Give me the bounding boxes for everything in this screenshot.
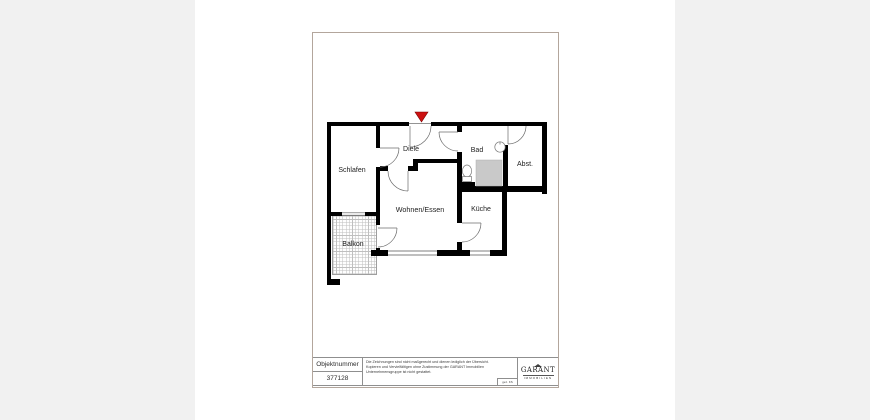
wall-segment xyxy=(376,167,380,225)
wall-segment xyxy=(457,152,462,223)
wall-segment xyxy=(365,212,378,216)
objektnummer-value: 377128 xyxy=(313,372,362,385)
disclaimer-line: Unternehmensgruppe ist nicht gestattet. xyxy=(366,370,514,375)
door-arc-abst xyxy=(508,126,526,144)
wall-segment xyxy=(376,248,380,256)
door-arc-entrance xyxy=(410,126,431,147)
door-arc-balkon xyxy=(378,228,397,247)
toilet-icon xyxy=(462,165,471,177)
wall-segment xyxy=(413,159,418,171)
room-label-wohnen-essen: Wohnen/Essen xyxy=(396,205,445,214)
walls xyxy=(327,122,547,285)
door-arc-diele-wohnen xyxy=(388,171,408,191)
room-label-bad: Bad xyxy=(471,147,484,154)
floor-plan-drawing: Schlafen Diele Bad Abst. Wohnen/Essen Kü… xyxy=(313,33,558,387)
logo-name: GARANT xyxy=(521,367,555,374)
logo-cell: GARANT IMMOBILIEN xyxy=(517,358,558,385)
room-label-kueche: Küche xyxy=(471,206,491,213)
background-band-left xyxy=(0,0,195,420)
wall-segment xyxy=(457,242,462,256)
room-label-schlafen: Schlafen xyxy=(338,167,365,174)
background-band-right xyxy=(675,0,870,420)
title-block: Objektnummer 377128 Die Zeichnungen sind… xyxy=(313,357,558,386)
wall-segment xyxy=(327,279,340,285)
wall-segment xyxy=(327,122,409,126)
wall-segment xyxy=(457,182,475,186)
floor-plan-page: Schlafen Diele Bad Abst. Wohnen/Essen Kü… xyxy=(312,32,559,388)
room-label-balkon: Balkon xyxy=(342,241,364,248)
entrance-arrow-icon xyxy=(415,112,428,122)
disclaimer-cell: Die Zeichnungen sind nicht maßgerecht un… xyxy=(363,358,517,385)
bath-fixtures xyxy=(462,142,505,186)
door-arc-bad xyxy=(439,132,458,151)
wall-segment xyxy=(331,212,342,216)
shower-tray xyxy=(476,160,502,186)
wall-segment xyxy=(327,122,331,285)
signature-box: gez. KS xyxy=(497,378,517,385)
wall-segment xyxy=(431,122,547,126)
objektnummer-cell: Objektnummer 377128 xyxy=(313,358,363,385)
toilet-cistern xyxy=(463,177,472,182)
wall-segment xyxy=(542,122,547,194)
wall-segment xyxy=(376,126,380,148)
door-arc-schlafen xyxy=(380,148,399,167)
logo-subtitle: IMMOBILIEN xyxy=(524,377,553,380)
wall-segment xyxy=(457,126,462,132)
room-label-diele: Diele xyxy=(403,146,419,153)
wall-segment xyxy=(503,145,508,186)
wall-segment xyxy=(418,159,457,163)
room-label-abst: Abst. xyxy=(517,161,533,168)
wall-segment xyxy=(437,250,470,256)
objektnummer-label: Objektnummer xyxy=(313,358,362,372)
windows xyxy=(342,213,490,255)
door-arc-kueche xyxy=(462,223,481,242)
wall-segment xyxy=(490,250,507,256)
wall-segment xyxy=(502,186,507,256)
